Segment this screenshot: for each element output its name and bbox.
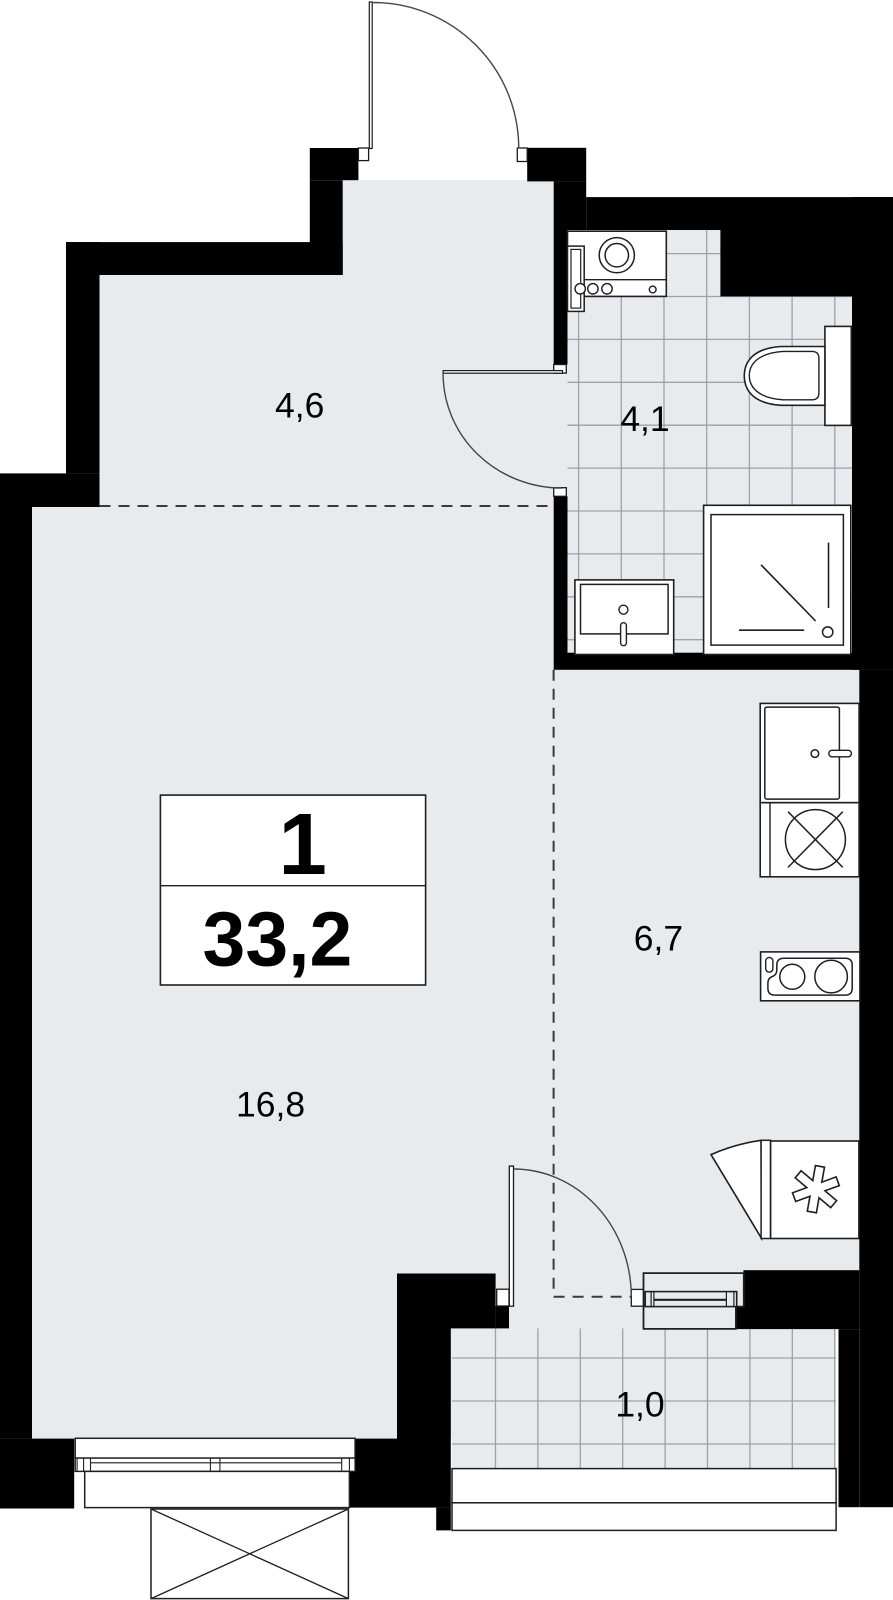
svg-text:33,2: 33,2 [203,896,353,982]
svg-text:4,6: 4,6 [275,386,324,426]
svg-text:6,7: 6,7 [634,918,683,958]
svg-text:1: 1 [279,796,327,893]
svg-text:1,0: 1,0 [615,1384,664,1424]
svg-text:4,1: 4,1 [620,399,669,439]
svg-text:16,8: 16,8 [236,1085,305,1125]
